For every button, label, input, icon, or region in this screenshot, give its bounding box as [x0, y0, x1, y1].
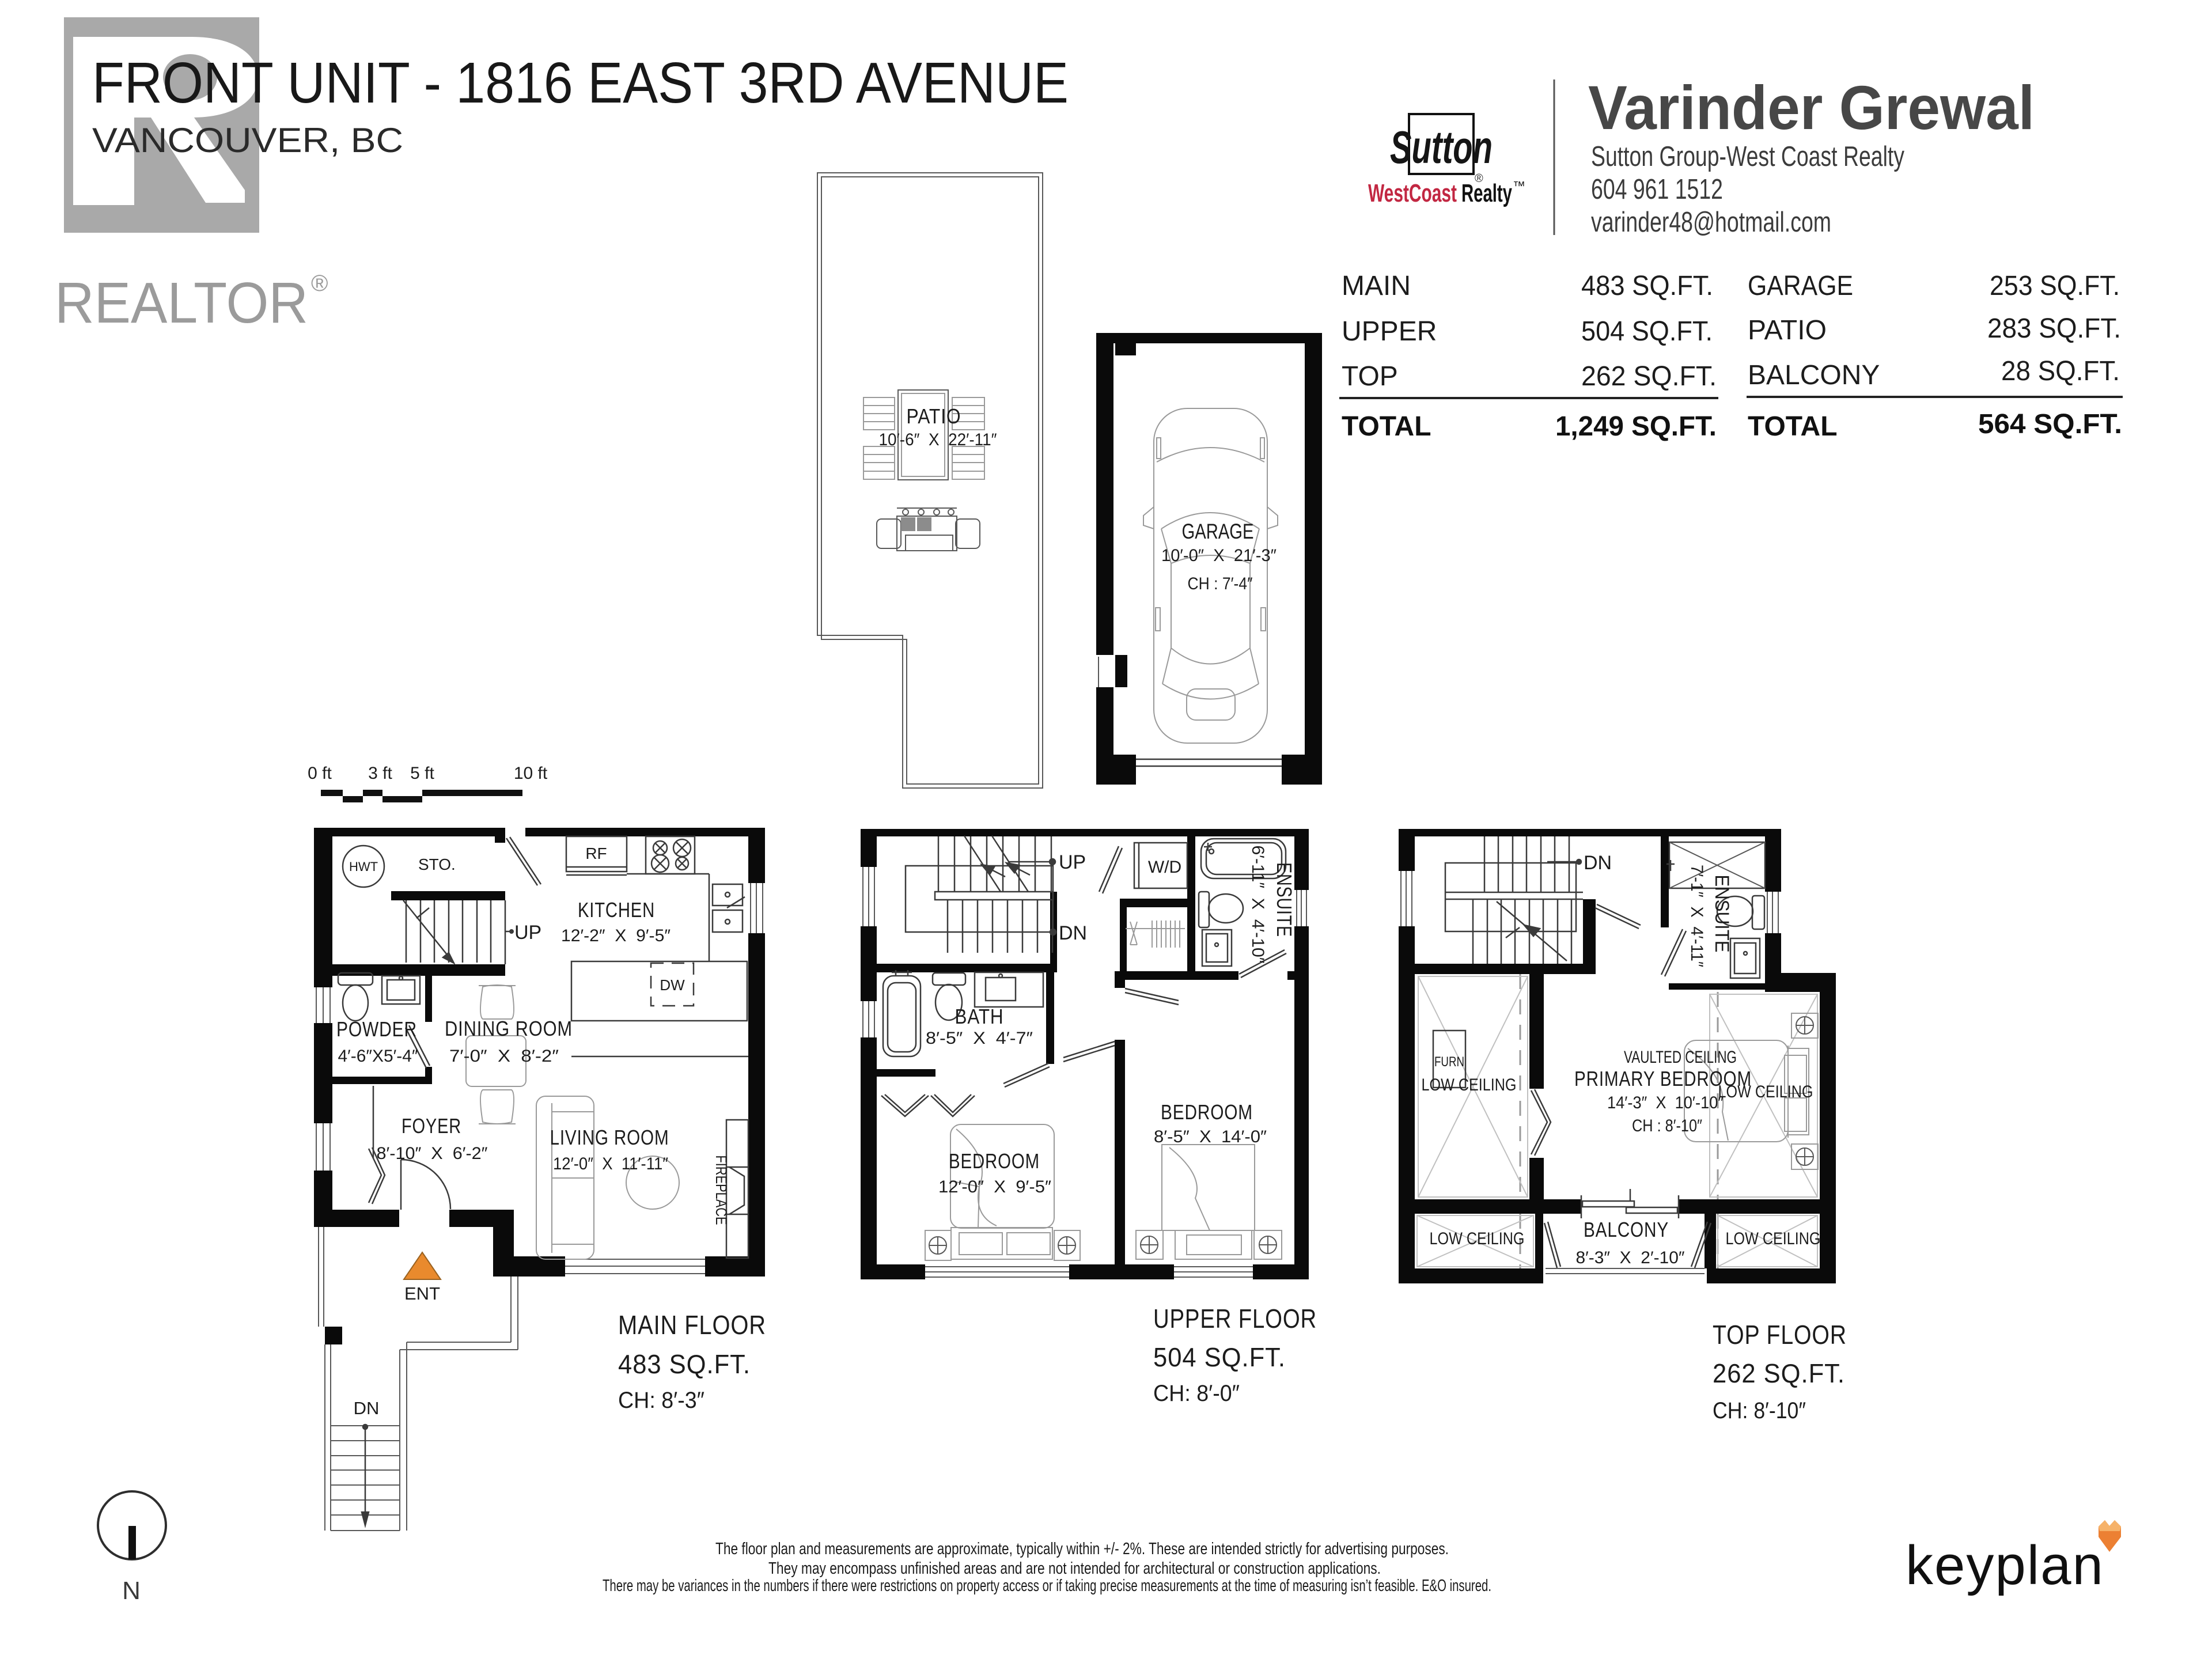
svg-text:UPPER FLOOR: UPPER FLOOR — [1153, 1304, 1317, 1334]
svg-text:REALTOR: REALTOR — [55, 271, 308, 335]
svg-text:There may be variances in the: There may be variances in the numbers if… — [603, 1577, 1491, 1595]
svg-text:VAULTED CEILING: VAULTED CEILING — [1624, 1048, 1737, 1067]
svg-text:1,249 SQ.FT.: 1,249 SQ.FT. — [1555, 411, 1717, 442]
svg-text:GARAGE: GARAGE — [1182, 520, 1254, 543]
svg-text:DN: DN — [1059, 922, 1087, 944]
svg-text:DN: DN — [354, 1398, 380, 1418]
svg-text:12′-0″ X 9′-5″: 12′-0″ X 9′-5″ — [938, 1177, 1051, 1196]
svg-text:MAIN FLOOR: MAIN FLOOR — [618, 1310, 766, 1340]
svg-text:253 SQ.FT.: 253 SQ.FT. — [1990, 271, 2120, 301]
svg-text:28 SQ.FT.: 28 SQ.FT. — [2001, 356, 2120, 387]
svg-text:FURN: FURN — [1434, 1054, 1464, 1070]
svg-text:Realty: Realty — [1461, 179, 1512, 207]
svg-text:8′-5″ X 14′-0″: 8′-5″ X 14′-0″ — [1154, 1127, 1267, 1146]
svg-text:LOW CEILING: LOW CEILING — [1430, 1229, 1525, 1248]
svg-text:FOYER: FOYER — [402, 1114, 461, 1138]
svg-text:10 ft: 10 ft — [514, 764, 548, 783]
svg-text:TOTAL: TOTAL — [1342, 411, 1431, 442]
svg-text:BALCONY: BALCONY — [1584, 1218, 1669, 1241]
svg-text:TOTAL: TOTAL — [1748, 411, 1838, 442]
svg-text:12′-0″ X 11′-11″: 12′-0″ X 11′-11″ — [553, 1154, 668, 1173]
svg-text:GARAGE: GARAGE — [1748, 271, 1853, 301]
svg-text:LOW CEILING: LOW CEILING — [1422, 1075, 1517, 1094]
svg-text:UP: UP — [1059, 851, 1086, 873]
svg-text:7′-0″ X 8′-2″: 7′-0″ X 8′-2″ — [449, 1047, 559, 1066]
svg-text:7′-1″ X 4′-11″: 7′-1″ X 4′-11″ — [1687, 865, 1706, 967]
svg-text:6′-11″ X 4′-10″: 6′-11″ X 4′-10″ — [1248, 846, 1267, 964]
svg-text:504 SQ.FT.: 504 SQ.FT. — [1153, 1342, 1286, 1372]
svg-text:keyplan: keyplan — [1906, 1535, 2104, 1596]
svg-text:LIVING ROOM: LIVING ROOM — [550, 1126, 669, 1149]
svg-text:8′-10″ X 6′-2″: 8′-10″ X 6′-2″ — [377, 1144, 488, 1163]
svg-text:504 SQ.FT.: 504 SQ.FT. — [1581, 316, 1713, 347]
svg-text:They may encompass unfinished: They may encompass unfinished areas and … — [768, 1559, 1381, 1578]
svg-text:ENT: ENT — [404, 1283, 440, 1304]
svg-text:UPPER: UPPER — [1342, 316, 1437, 347]
svg-text:N: N — [122, 1577, 141, 1605]
svg-text:14′-3″ X 10′-10″: 14′-3″ X 10′-10″ — [1607, 1093, 1724, 1112]
svg-text:483 SQ.FT.: 483 SQ.FT. — [1581, 271, 1713, 301]
svg-text:MAIN: MAIN — [1342, 271, 1411, 301]
svg-text:12′-2″ X 9′-5″: 12′-2″ X 9′-5″ — [561, 926, 671, 945]
svg-text:10′-0″ X 21′-3″: 10′-0″ X 21′-3″ — [1161, 546, 1277, 565]
svg-text:CH: 8′-10″: CH: 8′-10″ — [1713, 1398, 1806, 1423]
svg-text:TOP: TOP — [1342, 361, 1398, 392]
svg-text:0 ft: 0 ft — [308, 764, 332, 783]
svg-text:LOW CEILING: LOW CEILING — [1726, 1229, 1821, 1248]
svg-text:CH : 8′-10″: CH : 8′-10″ — [1632, 1116, 1702, 1135]
svg-text:DN: DN — [1584, 852, 1612, 874]
svg-text:483 SQ.FT.: 483 SQ.FT. — [618, 1349, 751, 1379]
svg-text:8′-3″ X 2′-10″: 8′-3″ X 2′-10″ — [1576, 1248, 1685, 1267]
svg-text:5 ft: 5 ft — [410, 764, 434, 783]
svg-text:CH : 7′-4″: CH : 7′-4″ — [1188, 574, 1253, 593]
svg-text:KITCHEN: KITCHEN — [578, 898, 655, 922]
svg-text:283 SQ.FT.: 283 SQ.FT. — [1987, 313, 2121, 344]
svg-text:RF: RF — [585, 844, 607, 862]
svg-text:Varinder Grewal: Varinder Grewal — [1588, 73, 2035, 142]
svg-text:W/D: W/D — [1148, 858, 1181, 877]
svg-text:8′-5″ X 4′-7″: 8′-5″ X 4′-7″ — [926, 1029, 1033, 1048]
svg-text:262 SQ.FT.: 262 SQ.FT. — [1713, 1358, 1845, 1388]
svg-text:PATIO: PATIO — [907, 404, 961, 428]
svg-text:BEDROOM: BEDROOM — [1161, 1100, 1253, 1124]
svg-text:BATH: BATH — [955, 1005, 1004, 1028]
svg-text:BALCONY: BALCONY — [1748, 360, 1880, 391]
svg-text:PATIO: PATIO — [1748, 315, 1827, 346]
svg-text:Sutton: Sutton — [1390, 122, 1493, 173]
svg-text:STO.: STO. — [418, 855, 456, 873]
svg-text:LOW CEILING: LOW CEILING — [1718, 1082, 1813, 1101]
svg-text:ENSUITE: ENSUITE — [1711, 875, 1733, 953]
svg-text:3 ft: 3 ft — [368, 764, 392, 783]
svg-text:FIREPLACE: FIREPLACE — [713, 1156, 730, 1225]
svg-text:TOP FLOOR: TOP FLOOR — [1713, 1320, 1847, 1350]
svg-text:Sutton Group-West Coast Realty: Sutton Group-West Coast Realty — [1591, 141, 1904, 172]
svg-text:VANCOUVER, BC: VANCOUVER, BC — [92, 121, 403, 160]
svg-text:10′-6″ X 22′-11″: 10′-6″ X 22′-11″ — [879, 430, 997, 449]
svg-text:HWT: HWT — [349, 859, 378, 874]
svg-text:564 SQ.FT.: 564 SQ.FT. — [1978, 409, 2122, 440]
svg-text:DW: DW — [660, 976, 685, 994]
svg-text:4′-6″X5′-4″: 4′-6″X5′-4″ — [338, 1047, 418, 1066]
svg-text:POWDER: POWDER — [336, 1017, 417, 1041]
svg-text:DINING ROOM: DINING ROOM — [445, 1017, 573, 1040]
svg-text:262 SQ.FT.: 262 SQ.FT. — [1581, 361, 1717, 392]
svg-text:™: ™ — [1513, 179, 1525, 193]
svg-text:ENSUITE: ENSUITE — [1272, 862, 1296, 937]
svg-text:®: ® — [311, 271, 328, 296]
svg-text:CH: 8′-3″: CH: 8′-3″ — [618, 1388, 704, 1413]
svg-text:FRONT UNIT - 1816 EAST 3RD AVE: FRONT UNIT - 1816 EAST 3RD AVENUE — [92, 51, 1069, 115]
svg-text:UP: UP — [514, 922, 541, 944]
svg-text:The floor plan and measurement: The floor plan and measurements are appr… — [715, 1540, 1449, 1558]
svg-text:604 961 1512: 604 961 1512 — [1591, 174, 1723, 205]
svg-text:varinder48@hotmail.com: varinder48@hotmail.com — [1591, 207, 1831, 238]
svg-text:WestCoast: WestCoast — [1368, 179, 1457, 207]
svg-text:BEDROOM: BEDROOM — [949, 1149, 1040, 1173]
svg-text:CH: 8′-0″: CH: 8′-0″ — [1153, 1381, 1240, 1406]
